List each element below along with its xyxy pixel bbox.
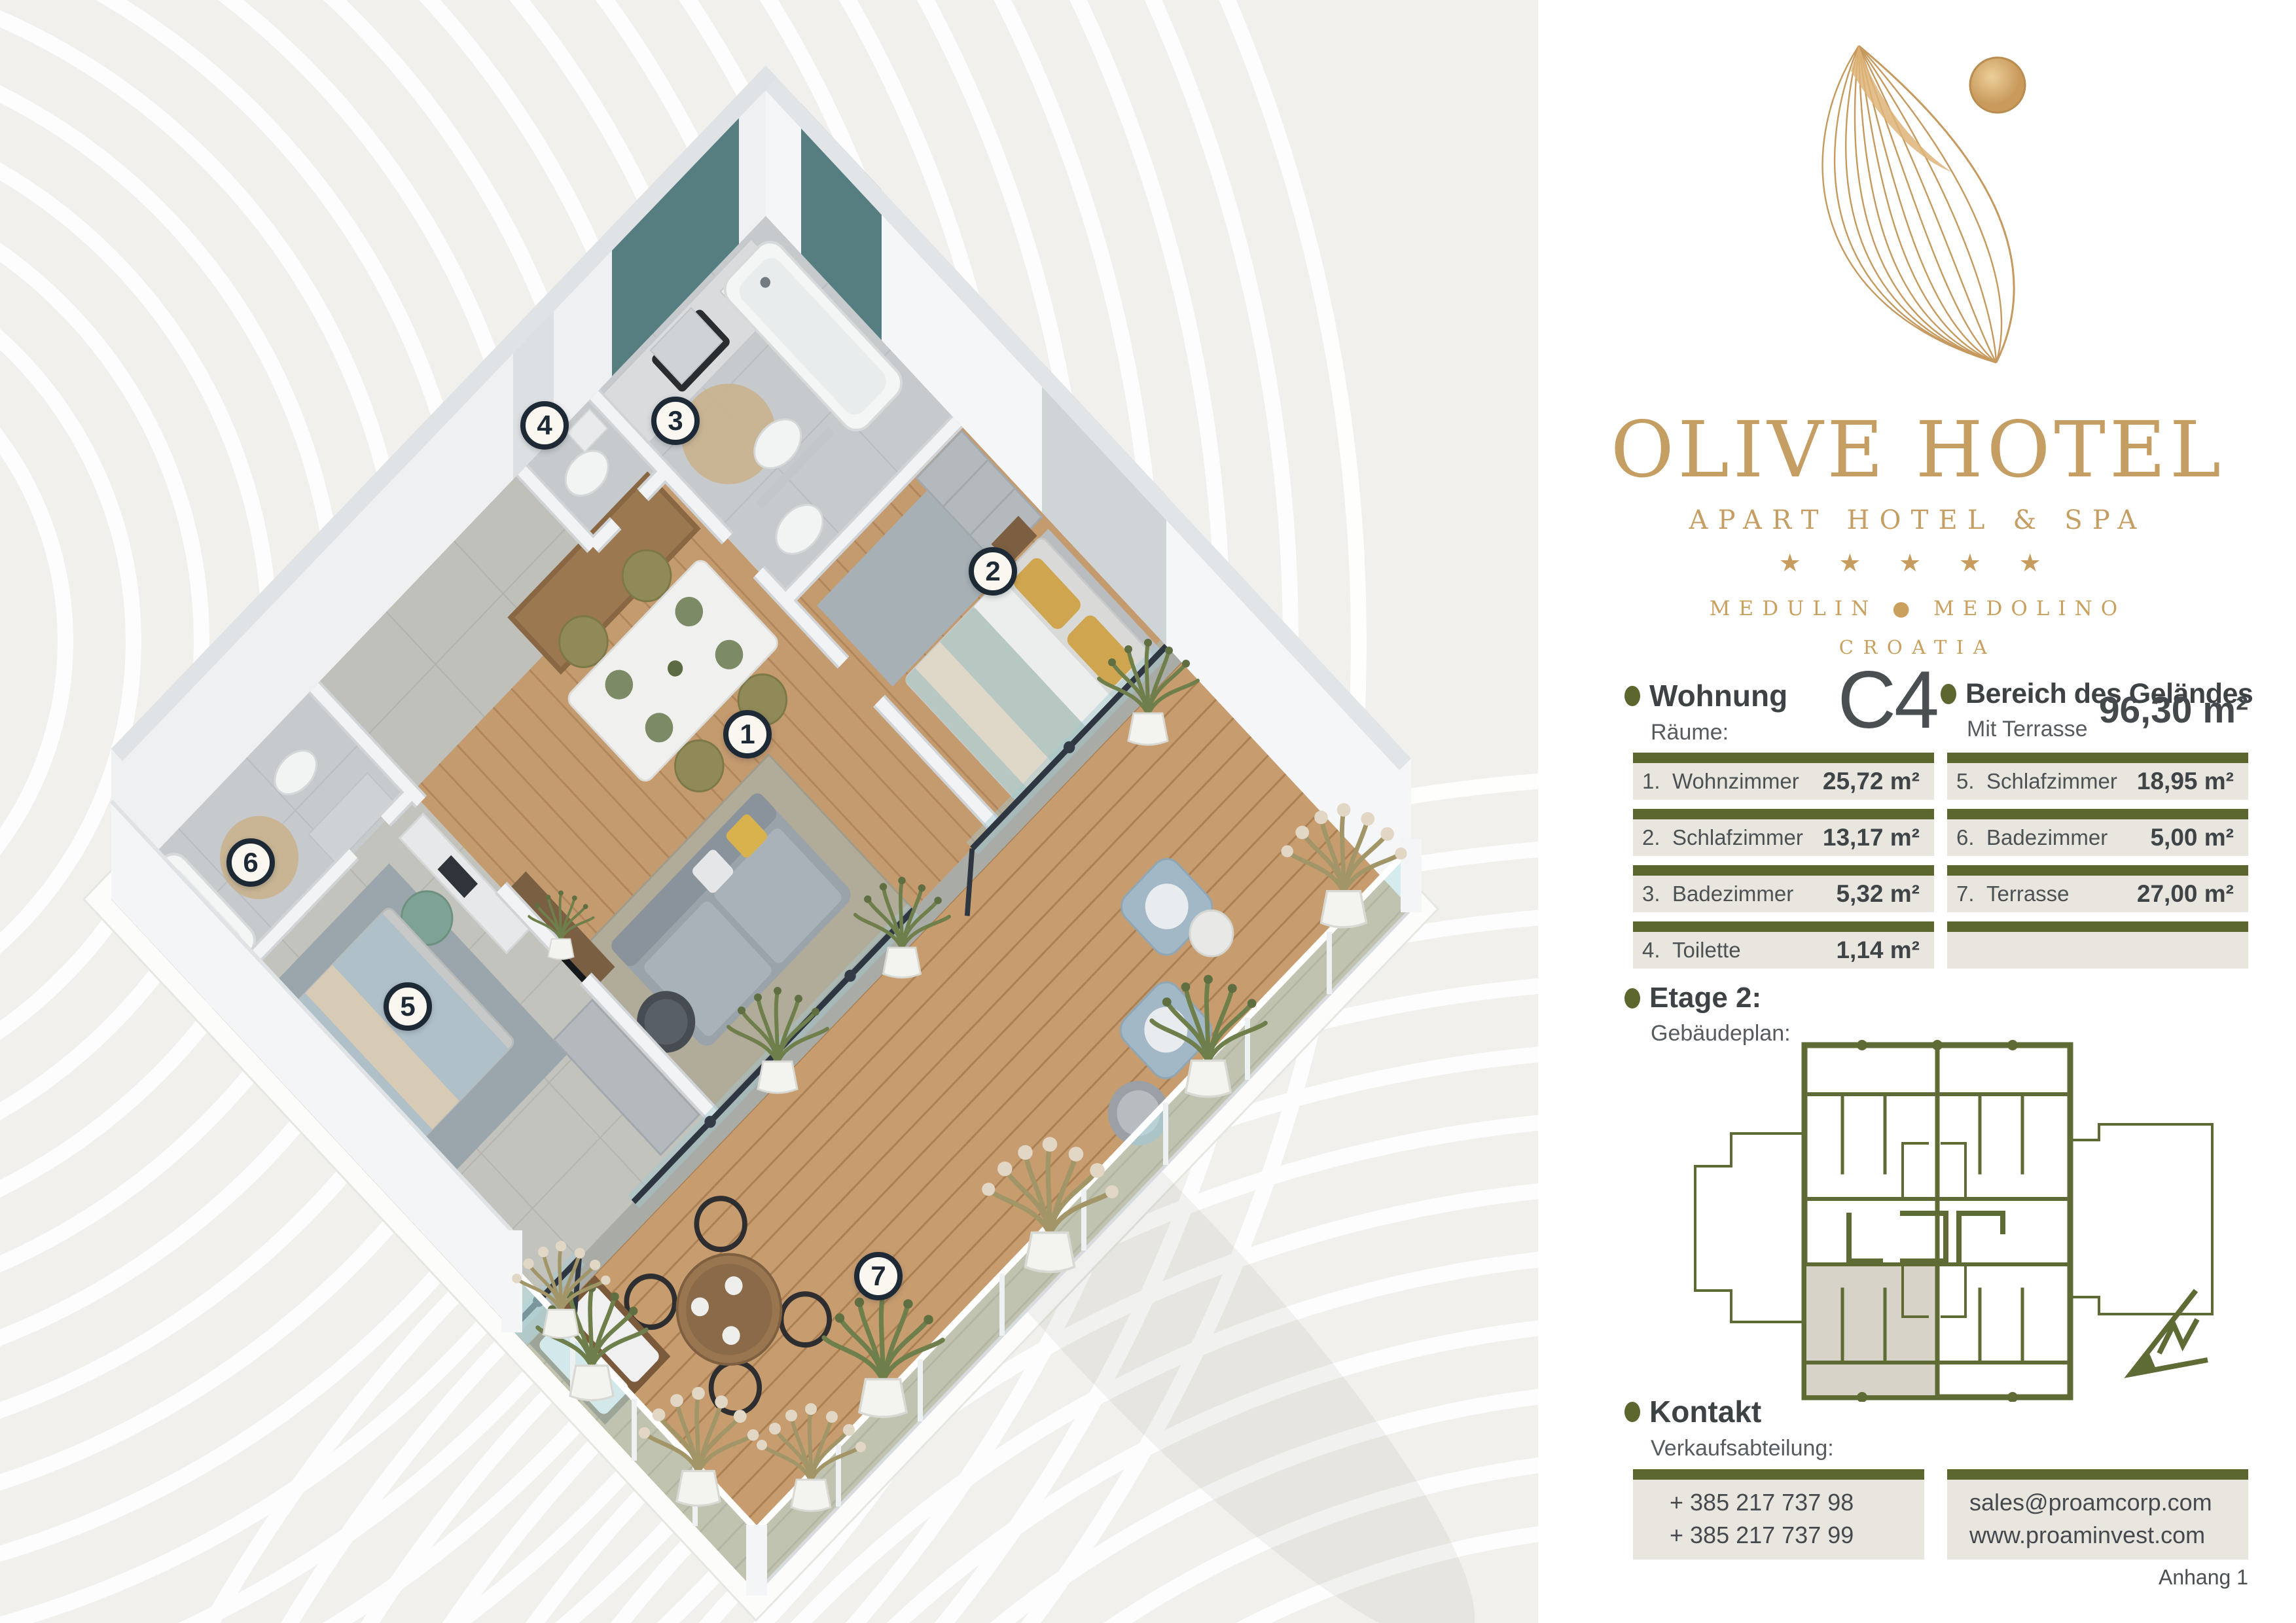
olive-bullet-icon xyxy=(1624,1402,1640,1422)
room-name: Badezimmer xyxy=(1986,825,2150,850)
room-name: Schlafzimmer xyxy=(1986,769,2137,794)
unit-header: Wohnung Räume: xyxy=(1624,678,1787,745)
room-name: Wohnzimmer xyxy=(1672,769,1823,794)
room-area: 1,14 m² xyxy=(1836,936,1920,964)
room-name: Toilette xyxy=(1672,938,1836,963)
room-area: 13,17 m² xyxy=(1823,824,1920,851)
room-area: 25,72 m² xyxy=(1823,768,1920,795)
hotel-location: MEDULIN ● MEDOLINO xyxy=(1545,597,2291,620)
brochure-page: 1 2 3 4 5 6 7 OLIVE HOTEL APART HOTEL & … xyxy=(0,0,2296,1623)
highlighted-unit xyxy=(1806,1266,1937,1395)
room-number: 5. xyxy=(1956,769,1986,794)
table-row: 7.Terrasse27,00 m² xyxy=(1947,865,2248,912)
sun-icon xyxy=(1970,58,2025,113)
room-number: 4. xyxy=(1642,938,1672,963)
building-plan xyxy=(1646,1009,2222,1402)
olive-bullet-icon xyxy=(1624,988,1640,1008)
hotel-name: OLIVE HOTEL xyxy=(1545,404,2291,495)
room-area: 18,95 m² xyxy=(2137,768,2234,795)
floorplan-render xyxy=(0,0,1538,1623)
contact-header: Kontakt Verkaufsabteilung: xyxy=(1624,1394,1834,1461)
room-number: 1. xyxy=(1642,769,1672,794)
marker-toilette: 4 xyxy=(520,401,569,450)
marker-wohnzimmer: 1 xyxy=(723,710,772,758)
left-wing xyxy=(1695,1133,1804,1322)
room-name: Schlafzimmer xyxy=(1672,825,1823,850)
unit-code: C4 xyxy=(1806,660,1937,741)
table-row: 1.Wohnzimmer25,72 m² xyxy=(1633,753,1934,800)
olive-bullet-icon xyxy=(1624,686,1640,706)
room-area: 5,32 m² xyxy=(1836,880,1920,908)
annex-label: Anhang 1 xyxy=(2052,1565,2248,1590)
room-number: 3. xyxy=(1642,882,1672,906)
rooms-table-right: 5.Schlafzimmer18,95 m² 6.Badezimmer5,00 … xyxy=(1947,753,2248,978)
table-row: 4.Toilette1,14 m² xyxy=(1633,921,1934,969)
table-row: 2.Schlafzimmer13,17 m² xyxy=(1633,809,1934,856)
olive-bullet-icon xyxy=(1941,684,1956,704)
phone-number: + 385 217 737 99 xyxy=(1633,1519,1924,1552)
room-number: 6. xyxy=(1956,825,1986,850)
table-row-empty xyxy=(1947,921,2248,969)
unit-sublabel: Räume: xyxy=(1651,720,1787,745)
table-row: 3.Badezimmer5,32 m² xyxy=(1633,865,1934,912)
contact-web-box: sales@proamcorp.com www.proaminvest.com xyxy=(1947,1469,2248,1560)
contact-website: www.proaminvest.com xyxy=(1947,1519,2248,1552)
room-name: Terrasse xyxy=(1986,882,2137,906)
room-number: 2. xyxy=(1642,825,1672,850)
star-rating: ★ ★ ★ ★ ★ xyxy=(1545,548,2291,578)
right-wing xyxy=(2070,1124,2212,1314)
marker-terrasse: 7 xyxy=(854,1252,903,1300)
table-row: 6.Badezimmer5,00 m² xyxy=(1947,809,2248,856)
rooms-table-left: 1.Wohnzimmer25,72 m² 2.Schlafzimmer13,17… xyxy=(1633,753,1934,978)
marker-schlafzimmer-2: 2 xyxy=(969,547,1017,596)
marker-badezimmer-6: 6 xyxy=(226,838,275,887)
unit-label: Wohnung xyxy=(1649,678,1787,713)
olive-leaf-logo-icon xyxy=(1780,31,2088,378)
table-row: 5.Schlafzimmer18,95 m² xyxy=(1947,753,2248,800)
room-name: Badezimmer xyxy=(1672,882,1836,906)
marker-schlafzimmer-5: 5 xyxy=(384,982,432,1031)
contact-email: sales@proamcorp.com xyxy=(1947,1486,2248,1519)
room-number: 7. xyxy=(1956,882,1986,906)
phone-number: + 385 217 737 98 xyxy=(1633,1486,1924,1519)
contact-phone-box: + 385 217 737 98 + 385 217 737 99 xyxy=(1633,1469,1924,1560)
area-total-value: 96,30 m² xyxy=(2049,688,2248,732)
marker-badezimmer-3: 3 xyxy=(651,397,700,445)
contact-label: Kontakt xyxy=(1649,1394,1761,1429)
room-area: 5,00 m² xyxy=(2150,824,2234,851)
hotel-subtitle: APART HOTEL & SPA xyxy=(1545,505,2291,535)
room-area: 27,00 m² xyxy=(2137,880,2234,908)
contact-sublabel: Verkaufsabteilung: xyxy=(1651,1436,1834,1461)
